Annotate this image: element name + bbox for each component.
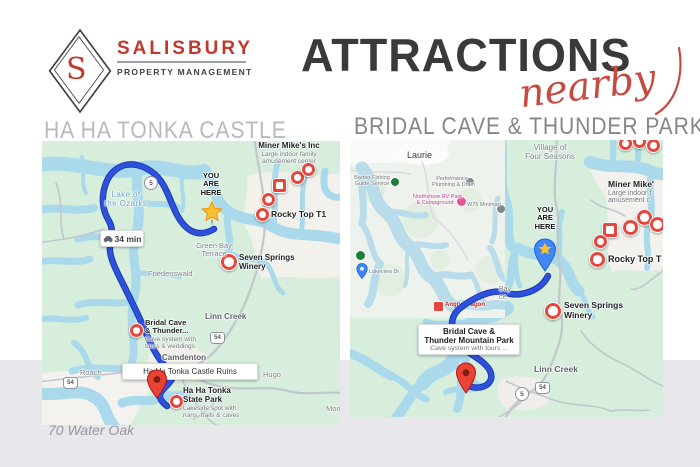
brand-name: SALISBURY — [117, 38, 253, 60]
town-green-bay-partial: Bay ce — [499, 286, 511, 302]
you-are-here-star-icon — [201, 201, 223, 227]
right-map-heading: BRIDAL CAVE & THUNDER PARK — [354, 113, 700, 141]
poi-seven-springs: Seven Springs Winery — [239, 254, 295, 272]
angry-dragon-pin-icon — [433, 301, 444, 312]
poi-pin-icon — [593, 234, 608, 249]
route-54-badge: 54 — [210, 332, 225, 344]
town-camdenton: Camdenton — [162, 354, 206, 363]
bridal-cave-label-box: Bridal Cave & Thunder Mountain Park Cave… — [418, 324, 520, 355]
inset-map-overview: Laurie Barber Fishing Guide Service Perf… — [350, 140, 505, 318]
rocky-top-pin-icon — [255, 207, 270, 222]
poi-bridal-cave-left: Bridal Cave & Thunder... Cave system wit… — [145, 319, 196, 350]
route-5-badge: 5 — [515, 387, 529, 401]
town-friedenswald: Friedenswald — [148, 270, 193, 278]
castle-ruins-label-box: Ha Ha Tonka Castle Ruins — [122, 363, 258, 380]
rocky-top-pin-icon — [589, 251, 606, 268]
town-linn-creek: Linn Creek — [534, 365, 578, 375]
wine-glass-pin-icon — [544, 302, 562, 320]
town-green-bay-terrace: Green Bay Terrace — [186, 242, 242, 259]
town-village-four-seasons: Village of Four Seasons — [522, 144, 578, 162]
brand-initial: S — [66, 52, 87, 87]
poi-pin-icon — [261, 192, 276, 207]
poi-rocky-top: Rocky Top T — [608, 254, 661, 264]
you-are-here-label: YOU ARE HERE — [523, 206, 567, 231]
fishing-poi-icon — [390, 177, 400, 187]
car-icon — [103, 235, 113, 243]
camera-pin-icon — [272, 178, 287, 193]
you-are-here-label: YOU ARE HERE — [185, 172, 237, 197]
route-5-badge: 5 — [144, 176, 158, 190]
destination-pin-icon — [146, 369, 168, 399]
town-roach: Roach — [80, 369, 102, 377]
state-park-pin-icon — [169, 394, 184, 409]
inset-map-art — [350, 140, 505, 318]
lake-label: Lake of the Ozarks — [98, 191, 154, 209]
shopping-pin-icon — [649, 216, 663, 233]
poi-minimart: W75 Minimart — [467, 202, 501, 208]
brand-tagline: PROPERTY MANAGEMENT — [117, 67, 253, 77]
marina-poi-icon — [355, 250, 366, 261]
town-linn-creek: Linn Creek — [205, 313, 246, 322]
route-54-badge: 54 — [535, 382, 550, 394]
street-pin-label: Lakeview Dr — [369, 269, 399, 275]
map-ha-ha-tonka: Lake of the Ozarks 5 34 min YOU ARE HERE… — [42, 141, 340, 425]
route-54-badge-west: 54 — [63, 377, 78, 389]
poi-rocky-top: Rocky Top T1 — [271, 210, 326, 220]
destination-pin-icon — [455, 362, 477, 394]
attraction-pin-icon — [301, 162, 316, 177]
poi-northshore-rv: Northshore RV Park & Campground — [413, 194, 457, 206]
poi-miner-mikes: Miner Mike' Large indoor f amusement c — [608, 180, 654, 205]
map-bridal-cave: Laurie Barber Fishing Guide Service Perf… — [350, 140, 663, 417]
drive-time-label: 34 min — [115, 234, 142, 244]
drive-time-badge: 34 min — [100, 230, 144, 247]
poi-barber-fishing: Barber Fishing Guide Service — [354, 175, 390, 187]
brand-divider — [117, 61, 246, 63]
town-laurie: Laurie — [407, 150, 432, 160]
script-flourish-icon — [654, 46, 694, 118]
poi-angry-dragon: Angry Dragon — [445, 302, 485, 309]
town-mont-partial: Mont — [326, 405, 340, 413]
poi-state-park: Ha Ha Tonka State Park Lakeside spot wit… — [183, 387, 239, 419]
poi-seven-springs: Seven Springs Winery — [564, 301, 623, 320]
flyer-page: S SALISBURY PROPERTY MANAGEMENT ATTRACTI… — [0, 0, 700, 467]
poi-miner-mikes: Miner Mike's Inc Large indoor family amu… — [240, 142, 338, 165]
street-pin-icon — [356, 263, 368, 279]
town-hugo: Hugo — [263, 371, 281, 379]
you-are-here-star-pin-icon — [533, 238, 557, 272]
cave-pin-icon — [129, 323, 144, 338]
poi-performance-plumbing: Performance Plumbing & Drain — [432, 176, 472, 188]
